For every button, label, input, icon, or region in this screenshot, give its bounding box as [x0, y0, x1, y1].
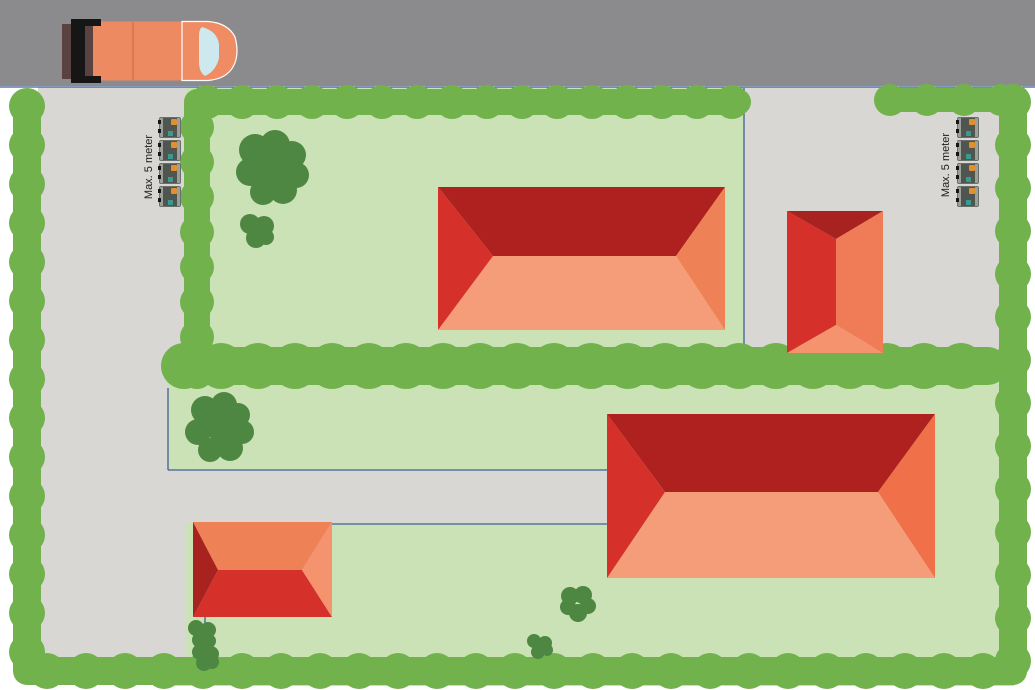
meter-box-icon	[957, 186, 979, 207]
site-plan-canvas	[0, 0, 1035, 690]
meter-box-orange-dial	[171, 142, 177, 148]
truck-body	[93, 22, 183, 81]
meter-box-teal-dial	[168, 131, 173, 136]
meter-box-hinge-icon	[956, 152, 959, 156]
meter-box-hinge-icon	[158, 143, 161, 147]
meter-box-teal-dial	[168, 177, 173, 182]
meter-box-hinge-icon	[158, 152, 161, 156]
meter-box-teal-dial	[966, 177, 971, 182]
meter-box-icon	[957, 140, 979, 161]
meter-box-hinge-icon	[956, 129, 959, 133]
meter-box-hinge-icon	[956, 143, 959, 147]
house-top-left	[438, 187, 725, 330]
meter-box-teal-dial	[966, 200, 971, 205]
meter-box-teal-dial	[966, 131, 971, 136]
meter-box-orange-dial	[969, 165, 975, 171]
meter-box-hinge-icon	[956, 175, 959, 179]
meter-box-orange-dial	[969, 142, 975, 148]
meter-box-icon	[159, 140, 181, 161]
meter-box-icon	[159, 117, 181, 138]
meter-box-hinge-icon	[158, 189, 161, 193]
driveway	[168, 470, 607, 524]
house-bottom-left	[193, 522, 332, 617]
meter-box-teal-dial	[168, 154, 173, 159]
max-distance-label-left: Max. 5 meter	[142, 120, 156, 214]
delivery-truck	[62, 19, 237, 83]
meter-box-icon	[957, 117, 979, 138]
meter-box-hinge-icon	[158, 166, 161, 170]
left-pavement-lower-edge	[168, 524, 186, 660]
house-right-small	[787, 211, 883, 353]
meter-box-hinge-icon	[956, 198, 959, 202]
meter-box-orange-dial	[171, 188, 177, 194]
meter-box-hinge-icon	[956, 120, 959, 124]
meter-box-hinge-icon	[956, 166, 959, 170]
meter-box-orange-dial	[969, 188, 975, 194]
meter-box-hinge-icon	[158, 175, 161, 179]
meter-box-icon	[159, 186, 181, 207]
max-distance-label-right: Max. 5 meter	[939, 118, 953, 212]
meter-box-icon	[957, 163, 979, 184]
meter-box-orange-dial	[171, 119, 177, 125]
meter-box-hinge-icon	[158, 198, 161, 202]
meter-box-hinge-icon	[956, 189, 959, 193]
house-bottom-right	[607, 414, 935, 578]
meter-box-hinge-icon	[158, 120, 161, 124]
site-plan: Max. 5 meter Max. 5 meter	[0, 0, 1035, 690]
meter-box-orange-dial	[171, 165, 177, 171]
meter-box-teal-dial	[966, 154, 971, 159]
meter-box-icon	[159, 163, 181, 184]
meter-box-orange-dial	[969, 119, 975, 125]
meter-box-hinge-icon	[158, 129, 161, 133]
meter-box-teal-dial	[168, 200, 173, 205]
